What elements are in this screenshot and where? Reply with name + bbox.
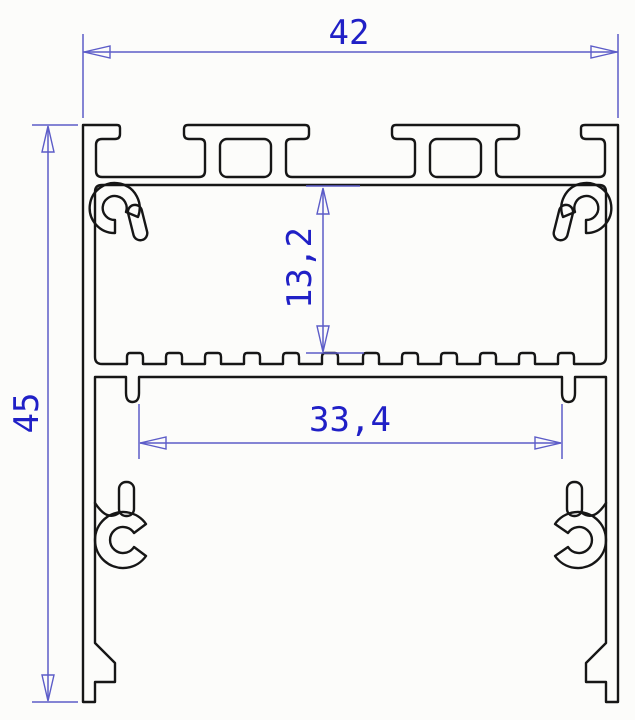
dim-inner-width: 33,4: [139, 400, 562, 459]
profile-drawing-svg: 42 45 13,2 33,4: [0, 0, 635, 720]
dim-overall-width: 42: [83, 13, 618, 118]
dim-inner-label: 33,4: [309, 400, 391, 440]
screw-port-top-right-finger: [552, 203, 574, 241]
tab-pocket-left: [220, 139, 271, 177]
dim-width-label: 42: [329, 13, 370, 53]
screw-port-top-left-finger: [126, 203, 148, 241]
screw-boss-bottom-left-jaw: [95, 503, 119, 516]
tab-pocket-right: [430, 139, 481, 177]
screw-boss-bottom-right-jaw: [582, 503, 606, 516]
dim-overall-height: 45: [7, 125, 78, 702]
screw-boss-bottom-right: [555, 512, 606, 568]
screw-boss-bottom-left: [95, 512, 146, 568]
dim-height-label: 45: [7, 393, 47, 434]
dimension-annotations: 42 45 13,2 33,4: [7, 13, 618, 702]
dim-depth-label: 13,2: [280, 227, 320, 309]
middle-chamber-with-teeth: [95, 185, 606, 364]
dim-channel-depth: 13,2: [280, 186, 364, 353]
technical-drawing-canvas: 42 45 13,2 33,4: [0, 0, 635, 720]
